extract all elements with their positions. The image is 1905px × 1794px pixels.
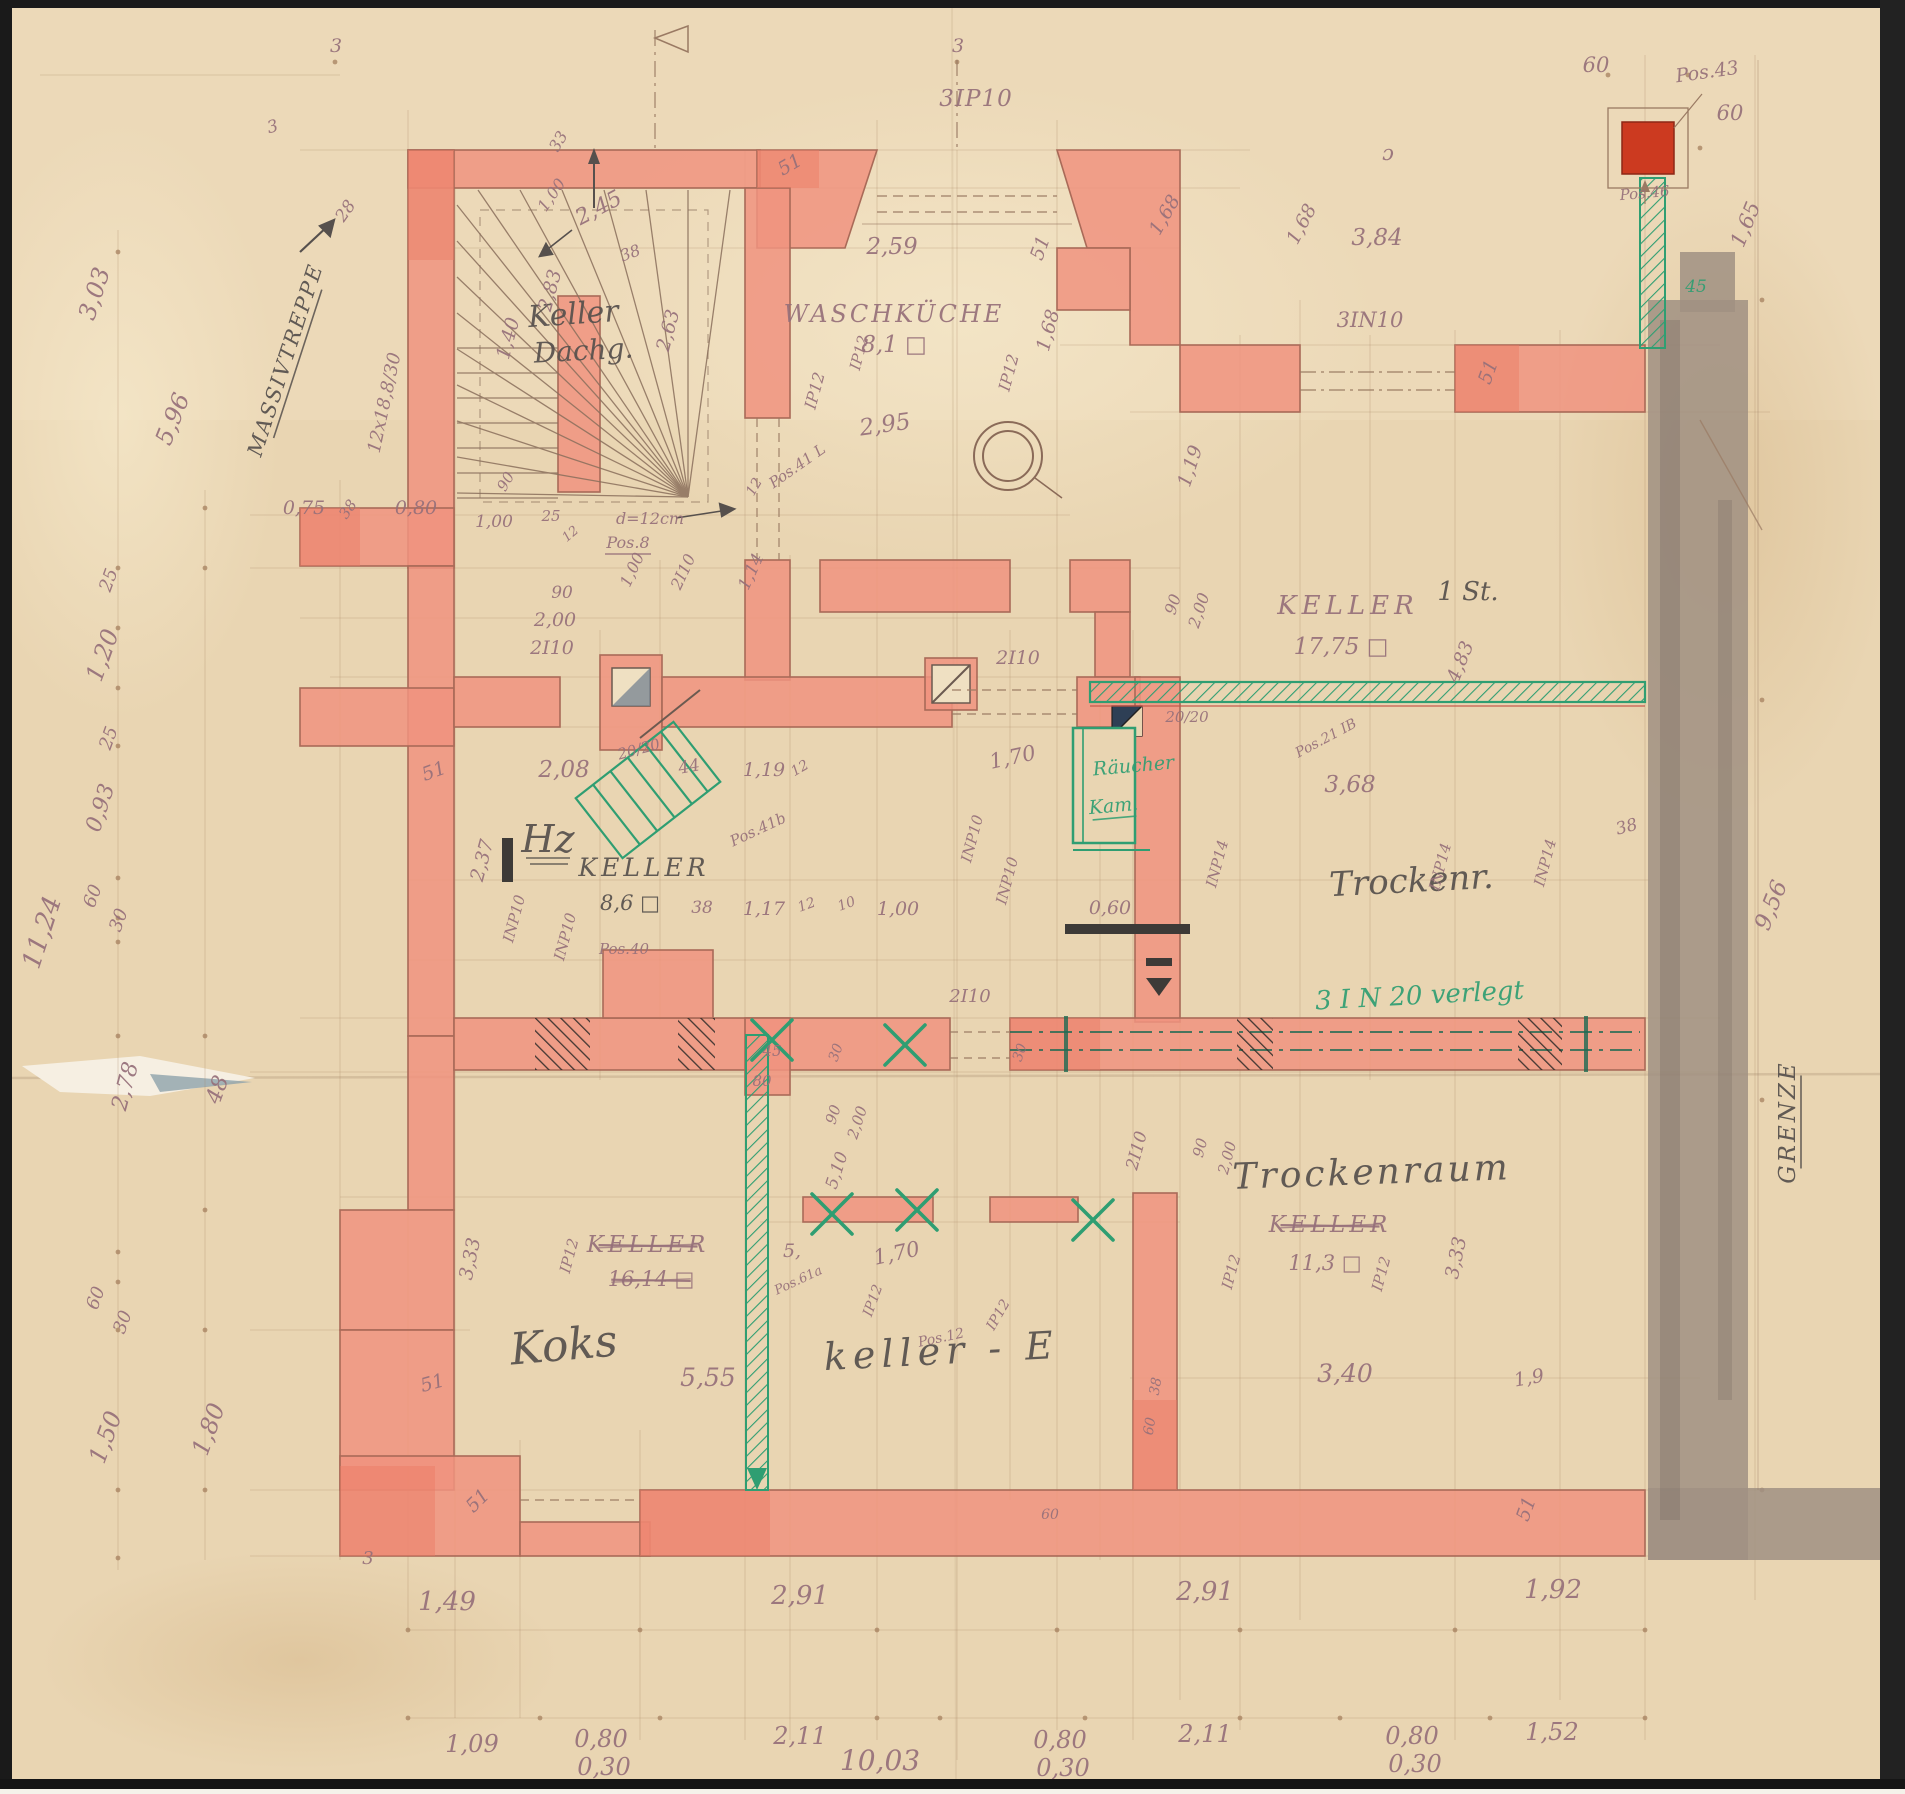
label-text: 5,55 [680, 1363, 736, 1392]
label-text: 1,49 [418, 1587, 476, 1617]
dimension-label: 90 [551, 583, 573, 603]
dimension-label: 8,1 □ [861, 332, 927, 358]
dimension-label: 0,80 [395, 497, 437, 519]
label-text: Hz [520, 817, 575, 861]
room-label: GRENZE [1775, 1060, 1801, 1183]
label-text: 0,60 [1089, 897, 1131, 919]
label-text: 2I10 [995, 647, 1040, 669]
dimension-label: 60 [1041, 1507, 1059, 1523]
dimension-label: 5,55 [680, 1363, 736, 1392]
wall-jog-waschkueche [1057, 248, 1130, 310]
wall-stub-removed-b [990, 1197, 1078, 1222]
wall-bottom [640, 1490, 1645, 1556]
room-label: 8,6 □ [600, 891, 660, 915]
label-text: 1,00 [877, 898, 919, 920]
label-text: 0,80 [1033, 1726, 1086, 1754]
label-text: d=12cm [616, 509, 684, 528]
dimension-label: 38 [1147, 1376, 1166, 1396]
label-text: WASCHKÜCHE [784, 299, 1005, 328]
dimension-label: 0,30 [1036, 1754, 1089, 1782]
label-text: 5, [783, 1240, 801, 1262]
dimension-label: 1,49 [418, 1587, 476, 1617]
label-text: 3 [330, 35, 342, 57]
label-text: 25 [540, 507, 560, 525]
label-text: 2,11 [772, 1722, 826, 1750]
dimension-label: 2,11 [1177, 1720, 1231, 1748]
dimension-label: 1,19 [743, 759, 785, 781]
dimension-label: 2,91 [1175, 1577, 1234, 1607]
label-text: 10,03 [840, 1744, 920, 1777]
label-text: 2,11 [1177, 1720, 1231, 1748]
label-text: 60 [1041, 1507, 1059, 1523]
wall-left-block [340, 1210, 454, 1330]
floor-plan-canvas: 33MASSIVTREPPE2812x18,8/302,451,0033Kell… [0, 0, 1905, 1794]
label-text: 2I10 [529, 637, 574, 659]
dimension-label: 3IN10 [1337, 308, 1404, 332]
dimension-label: 3 [952, 35, 964, 57]
wall-bottom-step [520, 1522, 650, 1556]
label-text: 2I10 [948, 986, 990, 1007]
label-text: 2,08 [537, 757, 589, 783]
room-label: KELLER [577, 853, 709, 882]
label-text: 45 [1684, 277, 1707, 297]
green-column-pos46 [1640, 178, 1665, 348]
dimension-label: 25 [540, 507, 560, 525]
dimension-label: 60 [1141, 1416, 1160, 1436]
label-text: 3,68 [1324, 772, 1375, 798]
dimension-label: 1,00 [475, 512, 513, 532]
wall-stair-top [408, 150, 760, 188]
label-text: 11,3 □ [1288, 1251, 1361, 1275]
dimension-label: 17,75 □ [1294, 634, 1389, 660]
label-text: 3,40 [1317, 1359, 1373, 1388]
dimension-label: 60 [1583, 53, 1610, 77]
dimension-label: Pos.8 [605, 533, 651, 554]
dimension-label: WASCHKÜCHE [784, 299, 1005, 328]
label-text: 60 [1717, 101, 1744, 125]
green-steel-beam [1090, 682, 1645, 702]
annotation-label: Kam. [1087, 793, 1139, 820]
annotation-label: 45 [1684, 277, 1707, 297]
green-column-strip [746, 1035, 768, 1490]
dimension-label: 0,60 [1089, 897, 1131, 919]
dimension-label: 38 [691, 898, 713, 918]
label-text: 3 [362, 1548, 373, 1569]
scanned-floor-plan-sheet: 33MASSIVTREPPE2812x18,8/302,451,0033Kell… [0, 0, 1905, 1794]
dimension-label: 2I10 [995, 647, 1040, 669]
label-text: 2,59 [865, 234, 917, 260]
label-text: 0,30 [1388, 1750, 1441, 1778]
label-text: 17,75 □ [1294, 634, 1389, 660]
dimension-label: 1,09 [445, 1730, 498, 1758]
wall-jog-raeucher [1095, 612, 1130, 677]
wall-waschkueche-bottom-a [820, 560, 1010, 612]
dimension-label: 10,03 [840, 1744, 920, 1777]
label-text: 1,17 [743, 898, 786, 920]
label-text: 0,80 [395, 497, 437, 519]
dimension-label: 0,80 [574, 1725, 627, 1753]
label-text: Dachg. [532, 331, 634, 369]
label-text: 38 [691, 898, 713, 918]
wall-left-lower [408, 1036, 454, 1210]
label-text: 2,91 [770, 1581, 829, 1611]
label-text: ɔ [1382, 141, 1394, 165]
dimension-label: Pos.40 [598, 940, 650, 958]
dimension-label: 2,59 [865, 234, 917, 260]
label-text: 3 [952, 35, 964, 57]
wall-left-pier-2 [300, 688, 454, 746]
label-text: 0,75 [283, 497, 325, 519]
wall-h1-a [454, 677, 560, 727]
dimension-label: 0,30 [1388, 1750, 1441, 1778]
label-text: 8,1 □ [861, 332, 927, 358]
label-text: 60 [1141, 1416, 1160, 1436]
dimension-label: 20/20 [1164, 708, 1209, 726]
dimension-label: 1,17 [743, 898, 786, 920]
dimension-label: 0,75 [283, 497, 325, 519]
dimension-label: 2I10 [529, 637, 574, 659]
label-text: 0,80 [574, 1725, 627, 1753]
dimension-label: 2I10 [948, 986, 990, 1007]
label-text: 0,80 [1385, 1722, 1438, 1750]
label-text: 38 [1147, 1376, 1166, 1396]
dimension-label: 3,40 [1317, 1359, 1373, 1388]
label-text: 0,30 [577, 1753, 630, 1781]
dimension-label: 0,80 [1033, 1726, 1086, 1754]
dimension-label: 3,84 [1351, 225, 1402, 251]
label-text: KELLER [1276, 591, 1419, 621]
dimension-label: KELLER [586, 1232, 710, 1258]
dimension-label: 3 [362, 1548, 373, 1569]
dimension-label: 2,08 [537, 757, 589, 783]
dimension-label: 3,68 [1324, 772, 1375, 798]
label-text: 80 [752, 1072, 772, 1090]
label-text: 3IP10 [939, 86, 1012, 112]
label-text: Koks [507, 1315, 619, 1375]
label-text: 1,92 [1524, 1575, 1582, 1605]
label-text: 8,6 □ [600, 891, 660, 915]
label-text: 44 [676, 755, 702, 779]
label-text: Kam. [1087, 793, 1139, 819]
dimension-label: 0,30 [577, 1753, 630, 1781]
label-text: GRENZE [1775, 1060, 1801, 1183]
dimension-label: d=12cm [616, 509, 684, 528]
label-text: 1,52 [1525, 1718, 1578, 1746]
label-text: 3IN10 [1337, 308, 1404, 332]
label-text: 1,09 [445, 1730, 498, 1758]
label-text: 20/20 [1164, 708, 1209, 726]
label-text: Pos.40 [598, 940, 650, 958]
room-label: 1 St. [1437, 577, 1498, 607]
label-text: 2,00 [533, 609, 576, 631]
label-text: 60 [1583, 53, 1610, 77]
dimension-label: 44 [676, 755, 702, 779]
dimension-label: 2,91 [770, 1581, 829, 1611]
label-text: 2,91 [1175, 1577, 1234, 1607]
label-text: KELLER [577, 853, 709, 882]
label-text: 0,30 [1036, 1754, 1089, 1782]
dimension-label: KELLER [1276, 591, 1419, 621]
dimension-label: 2,11 [772, 1722, 826, 1750]
dimension-label: 2,00 [533, 609, 576, 631]
label-text: 1,19 [743, 759, 785, 781]
label-text: 1 St. [1437, 577, 1498, 607]
dimension-label: 3IP10 [939, 86, 1012, 112]
label-text: Pos.8 [605, 533, 649, 552]
wall-stub-removed-a [803, 1197, 933, 1222]
dimension-label: KELLER [1268, 1212, 1392, 1238]
dimension-label: 16,14 □ [608, 1267, 695, 1291]
dimension-label: 80 [752, 1072, 772, 1090]
dimension-label: 60 [1717, 101, 1744, 125]
label-text: 90 [551, 583, 573, 603]
wall-left-middle [408, 566, 454, 1036]
dimension-label: 5, [783, 1240, 801, 1262]
wall-h1-b [662, 677, 952, 727]
room-label: Hz [520, 817, 575, 864]
label-text: 3,84 [1351, 225, 1402, 251]
label-text: 1,00 [475, 512, 513, 532]
label-text: 45 [761, 1042, 781, 1060]
wall-waschkueche-bottom-b [1070, 560, 1130, 612]
dimension-label: ɔ [1382, 141, 1394, 165]
pier-pos40 [603, 950, 713, 1018]
room-label: Dachg. [532, 331, 634, 369]
dimension-label: 1,00 [877, 898, 919, 920]
dimension-label: 45 [761, 1042, 781, 1060]
dimension-label: 1,92 [1524, 1575, 1582, 1605]
wall-topright-a [1180, 345, 1300, 412]
dimension-label: 3 [330, 35, 342, 57]
dimension-label: 11,3 □ [1288, 1251, 1361, 1275]
dimension-label: 0,80 [1385, 1722, 1438, 1750]
dimension-label: 1,52 [1525, 1718, 1578, 1746]
room-label: Koks [507, 1315, 619, 1375]
